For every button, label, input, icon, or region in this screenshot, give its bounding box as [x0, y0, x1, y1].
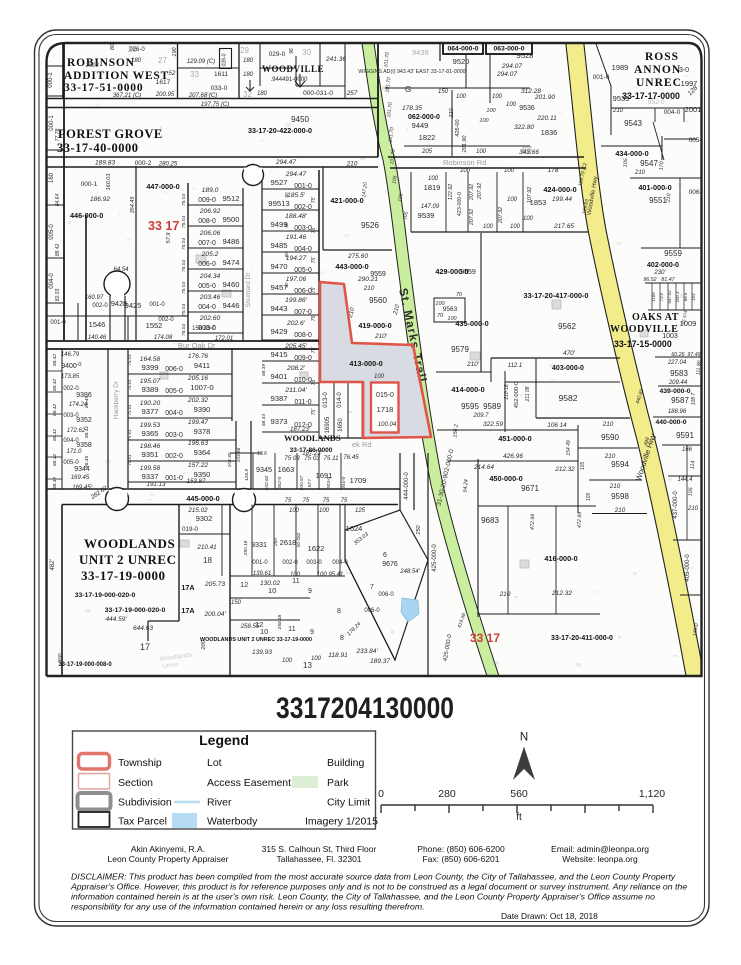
- svg-text:33-17-86-0000: 33-17-86-0000: [290, 447, 333, 454]
- svg-text:001-0: 001-0: [149, 302, 165, 308]
- svg-text:205: 205: [421, 149, 433, 155]
- svg-text:125: 125: [355, 508, 366, 514]
- svg-text:482′: 482′: [50, 559, 56, 571]
- svg-text:9387: 9387: [270, 394, 287, 403]
- svg-text:258.18: 258.18: [277, 614, 283, 630]
- svg-text:75.01: 75.01: [127, 404, 132, 416]
- svg-text:010-0: 010-0: [294, 377, 312, 384]
- svg-text:1822: 1822: [419, 133, 436, 142]
- svg-text:Tax Parcel: Tax Parcel: [118, 816, 167, 828]
- svg-text:419-000-0: 419-000-0: [358, 321, 391, 330]
- svg-text:8: 8: [340, 635, 344, 642]
- svg-text:27: 27: [158, 56, 167, 65]
- svg-text:203.46: 203.46: [199, 294, 221, 301]
- svg-text:446-000-0: 446-000-0: [70, 211, 103, 220]
- svg-text:33-17-20-411-000-0: 33-17-20-411-000-0: [551, 635, 613, 642]
- svg-text:33 17: 33 17: [470, 631, 500, 645]
- svg-text:75′: 75′: [311, 408, 317, 416]
- svg-text:100: 100: [435, 301, 445, 307]
- svg-text:452-000-0: 452-000-0: [514, 382, 520, 408]
- svg-text:64.54: 64.54: [113, 267, 129, 273]
- svg-text:002-0: 002-0: [294, 204, 312, 211]
- svg-text:00 052: 00 052: [296, 532, 302, 547]
- svg-text:180: 180: [243, 72, 254, 78]
- svg-text:33-17-19-000-020-0: 33-17-19-000-020-0: [75, 592, 136, 599]
- svg-text:343.66: 343.66: [519, 149, 539, 156]
- svg-text:9449: 9449: [412, 121, 429, 130]
- svg-text:190: 190: [172, 46, 178, 56]
- svg-text:129.09 (C): 129.09 (C): [187, 59, 215, 65]
- svg-text:100: 100: [476, 149, 487, 155]
- svg-text:006-0: 006-0: [378, 592, 394, 598]
- svg-text:68.39: 68.39: [261, 364, 267, 376]
- svg-text:9598: 9598: [611, 492, 629, 501]
- svg-text:33-17-19-0000: 33-17-19-0000: [81, 568, 166, 583]
- svg-text:86.45: 86.45: [84, 456, 90, 468]
- svg-text:88.42: 88.42: [52, 477, 58, 489]
- svg-text:195.07: 195.07: [140, 378, 161, 385]
- svg-text:209.44: 209.44: [668, 380, 688, 386]
- svg-text:280: 280: [438, 788, 456, 800]
- svg-text:005-0: 005-0: [294, 267, 312, 274]
- svg-text:062-000-0: 062-000-0: [408, 114, 440, 121]
- svg-text:122.92: 122.92: [448, 184, 454, 200]
- svg-text:75.04: 75.04: [181, 216, 187, 228]
- svg-text:207.92: 207.92: [469, 184, 475, 201]
- svg-text:88.42: 88.42: [52, 404, 58, 416]
- svg-text:2001: 2001: [685, 105, 702, 114]
- svg-text:11: 11: [288, 624, 296, 633]
- svg-text:164.58: 164.58: [140, 356, 161, 363]
- svg-text:212.32: 212.32: [554, 466, 575, 473]
- svg-text:280.25: 280.25: [158, 162, 178, 168]
- svg-text:9365: 9365: [141, 429, 158, 438]
- svg-text:000-031-0: 000-031-0: [303, 90, 333, 97]
- svg-text:447-000-0: 447-000-0: [146, 182, 179, 191]
- svg-text:005-0: 005-0: [49, 224, 55, 240]
- svg-text:171.0: 171.0: [66, 449, 82, 455]
- svg-text:Imagery 1/2015: Imagery 1/2015: [305, 816, 378, 828]
- svg-text:006-0: 006-0: [198, 261, 216, 268]
- svg-text:472.99: 472.99: [577, 512, 584, 528]
- svg-text:18: 18: [203, 556, 212, 565]
- svg-text:250.18: 250.18: [243, 540, 249, 556]
- svg-text:ROSS: ROSS: [645, 51, 679, 63]
- svg-text:Shumard Dr: Shumard Dr: [245, 272, 252, 308]
- svg-text:210: 210: [634, 170, 646, 176]
- svg-text:1622: 1622: [308, 544, 325, 553]
- svg-text:10: 10: [268, 586, 276, 595]
- svg-text:424-000-0: 424-000-0: [543, 185, 576, 194]
- svg-text:230′: 230′: [653, 270, 666, 276]
- svg-text:100: 100: [311, 656, 322, 662]
- svg-text:100: 100: [289, 508, 300, 514]
- svg-text:Hackberry Dr: Hackberry Dr: [113, 380, 120, 419]
- svg-text:33: 33: [190, 70, 199, 79]
- svg-text:9378: 9378: [194, 427, 211, 436]
- svg-text:004-0: 004-0: [198, 304, 216, 311]
- svg-text:9582: 9582: [559, 393, 578, 403]
- svg-text:005-0: 005-0: [198, 283, 216, 290]
- svg-text:17A: 17A: [181, 583, 194, 592]
- svg-text:10: 10: [260, 627, 268, 636]
- svg-text:006-0: 006-0: [294, 288, 312, 295]
- svg-text:88.42: 88.42: [52, 454, 58, 466]
- svg-text:444.59′: 444.59′: [105, 616, 127, 623]
- svg-text:064-000-0: 064-000-0: [448, 46, 479, 53]
- svg-text:209.7: 209.7: [472, 413, 489, 419]
- svg-text:004-0: 004-0: [664, 109, 681, 116]
- svg-text:Section: Section: [118, 777, 153, 789]
- svg-text:029-0: 029-0: [269, 51, 286, 58]
- svg-text:200.95: 200.95: [155, 92, 175, 98]
- svg-text:33-17-20-422-000-0: 33-17-20-422-000-0: [248, 126, 312, 135]
- svg-text:54.24: 54.24: [462, 479, 469, 493]
- svg-text:100: 100: [460, 168, 471, 174]
- svg-text:000-2: 000-2: [135, 160, 152, 167]
- svg-text:294.07: 294.07: [501, 63, 522, 70]
- svg-text:75.04: 75.04: [181, 260, 187, 272]
- svg-text:WIGGINS AD(I) 943.43′ EAST 33-: WIGGINS AD(I) 943.43′ EAST 33-17-81-0000: [358, 69, 465, 75]
- svg-text:014-0: 014-0: [337, 392, 343, 408]
- svg-text:52: 52: [169, 71, 176, 77]
- svg-text:1663: 1663: [278, 465, 295, 474]
- svg-text:1623: 1623: [85, 63, 99, 69]
- svg-text:290.21: 290.21: [357, 276, 378, 283]
- svg-text:9358: 9358: [76, 442, 92, 449]
- svg-text:UNIT 2 UNREC: UNIT 2 UNREC: [79, 552, 177, 567]
- svg-text:33-17-20-417-000-0: 33-17-20-417-000-0: [524, 291, 589, 300]
- svg-text:001-0: 001-0: [50, 320, 66, 326]
- svg-text:9527: 9527: [270, 178, 287, 187]
- svg-text:17A: 17A: [181, 606, 194, 615]
- svg-text:80: 80: [284, 252, 289, 258]
- svg-text:75.01: 75.01: [127, 379, 132, 391]
- svg-text:354.45: 354.45: [130, 196, 136, 214]
- svg-text:33 17: 33 17: [148, 219, 179, 233]
- svg-text:75: 75: [285, 498, 292, 504]
- svg-text:1617: 1617: [156, 79, 171, 86]
- svg-text:100: 100: [456, 94, 467, 100]
- svg-text:178: 178: [548, 167, 559, 174]
- svg-text:6: 6: [383, 552, 387, 559]
- svg-text:140.46: 140.46: [88, 335, 107, 341]
- svg-text:250: 250: [416, 524, 422, 535]
- svg-text:004-0: 004-0: [165, 410, 183, 417]
- svg-text:75.11: 75.11: [323, 455, 338, 462]
- svg-text:100: 100: [479, 118, 489, 124]
- svg-text:403-000-0: 403-000-0: [552, 365, 584, 372]
- svg-text:188.96: 188.96: [668, 409, 687, 415]
- svg-text:WOODLANDS UNIT 2 UNREC 33-17-1: WOODLANDS UNIT 2 UNREC 33-17-19-0000: [200, 637, 312, 643]
- svg-text:322.80: 322.80: [514, 124, 534, 131]
- svg-text:9539: 9539: [418, 211, 435, 220]
- svg-text:105: 105: [688, 487, 695, 496]
- svg-text:210: 210: [612, 108, 624, 114]
- svg-text:003-0: 003-0: [165, 432, 183, 439]
- svg-text:72.0: 72.0: [659, 292, 664, 301]
- svg-text:9551: 9551: [649, 196, 667, 205]
- svg-text:227.04: 227.04: [667, 360, 687, 366]
- svg-text:002-0: 002-0: [277, 477, 283, 490]
- svg-text:202.32: 202.32: [187, 397, 209, 404]
- svg-text:2618: 2618: [280, 538, 297, 547]
- svg-text:9364: 9364: [194, 448, 211, 457]
- svg-text:451-000-0: 451-000-0: [498, 434, 531, 443]
- svg-text:210′: 210′: [466, 361, 480, 368]
- svg-text:9589: 9589: [483, 402, 501, 411]
- svg-text:444-000-0: 444-000-0: [404, 472, 410, 500]
- svg-text:57.9: 57.9: [166, 233, 172, 244]
- svg-text:9337: 9337: [141, 472, 158, 481]
- svg-text:186.92: 186.92: [90, 196, 110, 203]
- svg-text:9591: 9591: [676, 431, 694, 440]
- svg-text:100: 100: [486, 108, 496, 114]
- svg-text:197.06: 197.06: [286, 276, 307, 283]
- svg-text:9411: 9411: [194, 361, 210, 370]
- svg-text:12: 12: [240, 580, 248, 589]
- svg-text:156 2: 156 2: [452, 424, 459, 438]
- svg-text:425-000-0: 425-000-0: [432, 544, 438, 572]
- svg-text:75.04: 75.04: [181, 324, 187, 336]
- svg-text:75: 75: [303, 498, 310, 504]
- svg-text:100: 100: [282, 658, 293, 664]
- svg-text:105: 105: [586, 493, 592, 502]
- svg-text:208.2′: 208.2′: [286, 365, 306, 372]
- svg-text:001-0: 001-0: [294, 183, 312, 190]
- svg-text:210: 210: [499, 591, 511, 598]
- svg-text:004-0: 004-0: [341, 477, 347, 490]
- svg-text:Subdivision: Subdivision: [118, 797, 172, 809]
- svg-text:1853: 1853: [530, 198, 547, 207]
- svg-text:199.53: 199.53: [140, 422, 161, 429]
- svg-text:1819: 1819: [424, 183, 441, 192]
- svg-text:100: 100: [492, 94, 503, 100]
- svg-text:16905: 16905: [325, 416, 331, 433]
- svg-text:214.64: 214.64: [473, 464, 494, 471]
- svg-text:UNREC: UNREC: [636, 77, 682, 89]
- svg-text:210.41: 210.41: [196, 544, 216, 551]
- svg-text:178.35: 178.35: [402, 105, 422, 112]
- svg-text:210: 210: [609, 483, 621, 490]
- svg-text:200.04′: 200.04′: [203, 611, 226, 618]
- svg-text:9579: 9579: [451, 345, 469, 354]
- svg-text:257: 257: [346, 90, 358, 97]
- svg-text:1,120: 1,120: [639, 788, 665, 800]
- svg-text:9547: 9547: [640, 159, 658, 168]
- svg-text:G: G: [405, 85, 411, 94]
- svg-text:1552: 1552: [146, 321, 163, 330]
- svg-text:76.45: 76.45: [343, 454, 359, 461]
- svg-text:ANNON: ANNON: [634, 64, 681, 76]
- svg-text:75.01: 75.01: [127, 429, 132, 441]
- svg-text:99513: 99513: [268, 199, 289, 208]
- svg-text:9302: 9302: [196, 514, 212, 523]
- svg-text:33-17-19-000-008-0: 33-17-19-000-008-0: [58, 662, 112, 668]
- svg-text:002-0: 002-0: [165, 453, 183, 460]
- svg-text:75: 75: [323, 498, 330, 504]
- svg-text:106 14: 106 14: [547, 422, 567, 429]
- svg-text:013-0: 013-0: [323, 392, 329, 408]
- svg-text:426.96: 426.96: [503, 453, 523, 460]
- svg-text:248.54′: 248.54′: [399, 569, 420, 575]
- svg-text:210: 210: [363, 285, 375, 292]
- svg-text:75.01: 75.01: [127, 354, 132, 366]
- svg-text:241.36: 241.36: [325, 56, 346, 63]
- svg-text:421-000-0: 421-000-0: [330, 196, 363, 205]
- svg-text:150: 150: [438, 89, 449, 95]
- svg-text:information contained herein i: information contained herein is at the u…: [71, 892, 655, 902]
- svg-text:472.99: 472.99: [530, 514, 537, 530]
- svg-text:1718: 1718: [377, 405, 394, 414]
- svg-text:0: 0: [378, 788, 384, 800]
- svg-text:3-0: 3-0: [679, 67, 689, 74]
- svg-text:180: 180: [243, 58, 254, 64]
- svg-text:1709: 1709: [350, 476, 367, 485]
- svg-text:Access Easement: Access Easement: [207, 777, 291, 789]
- svg-text:100: 100: [510, 224, 521, 230]
- svg-text:210′: 210′: [374, 333, 388, 340]
- svg-text:100.04: 100.04: [378, 422, 397, 428]
- svg-text:70: 70: [437, 313, 444, 319]
- svg-text:100: 100: [507, 197, 518, 203]
- svg-text:199.86′: 199.86′: [285, 297, 307, 304]
- svg-text:952-0: 952-0: [648, 99, 665, 106]
- svg-text:100: 100: [319, 508, 330, 514]
- svg-text:112.1: 112.1: [508, 363, 523, 369]
- svg-text:172.01: 172.01: [215, 336, 233, 342]
- svg-text:150: 150: [231, 600, 242, 606]
- svg-text:9500: 9500: [223, 215, 240, 224]
- svg-text:9: 9: [308, 588, 312, 595]
- svg-text:644.63: 644.63: [133, 625, 153, 632]
- svg-text:1109: 1109: [651, 292, 656, 302]
- svg-text:169.45′: 169.45′: [72, 485, 92, 491]
- svg-text:80: 80: [284, 222, 289, 228]
- svg-text:17: 17: [140, 642, 150, 652]
- svg-text:.944491-0000: .944491-0000: [270, 77, 308, 83]
- svg-text:204.34: 204.34: [199, 273, 221, 280]
- svg-text:103.56: 103.56: [236, 447, 242, 462]
- svg-text:9425: 9425: [125, 301, 142, 310]
- svg-text:75.04: 75.04: [181, 238, 187, 250]
- svg-text:211 08: 211 08: [525, 386, 531, 402]
- svg-text:435-000-0: 435-000-0: [455, 319, 488, 328]
- svg-text:188.48′: 188.48′: [285, 213, 307, 220]
- svg-text:210: 210: [687, 506, 699, 512]
- svg-text:8: 8: [337, 608, 341, 615]
- svg-text:201.90: 201.90: [462, 135, 468, 154]
- svg-text:105: 105: [623, 158, 630, 167]
- svg-text:147.09: 147.09: [421, 204, 440, 210]
- svg-text:9590: 9590: [601, 433, 619, 442]
- svg-text:440-000-0: 440-000-0: [656, 419, 687, 426]
- svg-text:River: River: [207, 797, 232, 809]
- svg-text:Date Drawn: Oct 18, 2018: Date Drawn: Oct 18, 2018: [501, 911, 598, 921]
- svg-text:Website: leonpa.org: Website: leonpa.org: [562, 854, 638, 864]
- svg-text:026-0: 026-0: [129, 47, 145, 53]
- svg-text:13: 13: [303, 661, 312, 670]
- svg-text:100.3: 100.3: [675, 291, 680, 302]
- svg-text:1003: 1003: [662, 333, 678, 340]
- svg-text:233.84′: 233.84′: [355, 648, 378, 655]
- svg-text:154 49: 154 49: [566, 440, 572, 456]
- svg-text:1650: 1650: [338, 418, 344, 432]
- svg-text:139.93: 139.93: [252, 649, 272, 656]
- svg-text:322.59: 322.59: [483, 421, 503, 428]
- svg-text:75′: 75′: [311, 378, 317, 386]
- svg-text:29: 29: [240, 46, 249, 55]
- svg-text:9543: 9543: [624, 119, 642, 128]
- svg-text:70: 70: [456, 292, 463, 298]
- svg-text:1989: 1989: [612, 63, 629, 72]
- svg-text:9563: 9563: [443, 306, 458, 313]
- svg-text:126.9: 126.9: [244, 469, 250, 481]
- svg-text:-0: -0: [77, 362, 82, 368]
- svg-text:96.52: 96.52: [643, 277, 656, 283]
- svg-text:210: 210: [614, 507, 626, 514]
- svg-text:006-0: 006-0: [165, 366, 183, 373]
- svg-text:367.21 (C): 367.21 (C): [113, 93, 141, 99]
- svg-text:WOODVILLE: WOODVILLE: [262, 64, 324, 74]
- svg-text:210: 210: [346, 161, 358, 168]
- svg-text:207.68 (C): 207.68 (C): [188, 93, 217, 99]
- svg-text:68.33: 68.33: [261, 414, 267, 426]
- svg-text:1836: 1836: [541, 128, 558, 137]
- svg-text:139.61: 139.61: [253, 571, 271, 577]
- svg-text:547.02: 547.02: [667, 290, 672, 304]
- svg-text:019-0: 019-0: [182, 526, 199, 533]
- svg-text:180: 180: [257, 91, 268, 97]
- svg-text:401-000-0: 401-000-0: [638, 183, 671, 192]
- svg-text:160.97: 160.97: [85, 295, 104, 301]
- svg-text:003-0: 003-0: [306, 560, 322, 566]
- svg-text:9: 9: [310, 629, 314, 636]
- svg-text:100: 100: [428, 176, 439, 182]
- svg-text:ek Rd: ek Rd: [352, 440, 372, 449]
- svg-text:189.83: 189.83: [95, 160, 115, 167]
- svg-text:FOREST GROVE: FOREST GROVE: [58, 127, 163, 141]
- svg-text:402-000-0: 402-000-0: [647, 262, 679, 269]
- svg-text:170: 170: [659, 161, 666, 170]
- svg-text:9526: 9526: [361, 221, 379, 230]
- svg-text:9595: 9595: [461, 402, 479, 411]
- svg-text:80: 80: [284, 282, 289, 288]
- svg-text:439-000-0: 439-000-0: [660, 388, 691, 395]
- svg-text:80: 80: [284, 192, 289, 198]
- svg-text:217.65: 217.65: [553, 223, 574, 230]
- svg-text:WOODLANDS: WOODLANDS: [84, 536, 175, 551]
- svg-text:9512: 9512: [223, 194, 240, 203]
- svg-text:100: 100: [374, 374, 385, 380]
- svg-text:9390: 9390: [194, 405, 211, 414]
- svg-text:207.92: 207.92: [477, 183, 483, 200]
- svg-text:9520: 9520: [453, 57, 470, 66]
- svg-text:005-0: 005-0: [165, 388, 183, 395]
- svg-text:185.5′: 185.5′: [287, 192, 306, 199]
- svg-text:Appraiser's Office. However, t: Appraiser's Office. However, this produc…: [70, 882, 687, 892]
- svg-text:81.47: 81.47: [661, 277, 675, 283]
- svg-text:210: 210: [666, 193, 673, 203]
- svg-text:9671: 9671: [521, 484, 539, 493]
- svg-text:1009: 1009: [680, 319, 697, 328]
- svg-text:1611: 1611: [214, 71, 228, 78]
- svg-text:33-17-19-000-020-0: 33-17-19-000-020-0: [105, 607, 166, 614]
- svg-text:75: 75: [341, 498, 348, 504]
- svg-text:172.62: 172.62: [67, 428, 86, 434]
- svg-text:250: 250: [273, 538, 279, 547]
- svg-text:174.08: 174.08: [154, 335, 173, 341]
